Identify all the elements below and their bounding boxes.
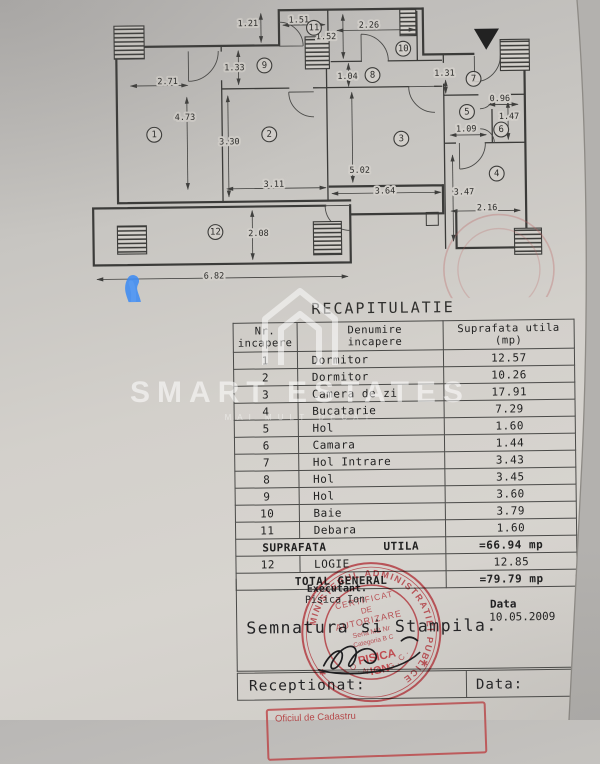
dimension-label: 3.11 <box>264 180 285 190</box>
room-area: 1.60 <box>445 518 576 537</box>
dimension-label: 1.04 <box>337 72 358 82</box>
cadastru-box-stamp: Oficiul de Cadastru <box>266 701 488 761</box>
room-number-circle: 11 <box>308 23 319 33</box>
room-name: Baie <box>299 503 445 522</box>
room-area: 1.60 <box>444 416 575 435</box>
room-number-circle: 6 <box>498 125 504 135</box>
room-area: 17.91 <box>444 382 575 401</box>
dimension-label: 3.64 <box>375 186 396 196</box>
dimension-label: 2.26 <box>359 21 380 31</box>
signature <box>303 626 454 688</box>
room-name: Dormitor <box>297 367 443 386</box>
dimension-label: 1.21 <box>238 19 259 29</box>
dimension-label: 2.16 <box>477 203 498 213</box>
room-number: 4 <box>234 403 298 421</box>
room-name: Hol <box>298 469 444 488</box>
room-number: 9 <box>235 488 299 506</box>
room-name: Camera de zi <box>297 384 443 403</box>
dimension-label: 3.30 <box>219 137 240 147</box>
room-number: 2 <box>234 369 298 387</box>
dimension-label: 1.31 <box>434 69 455 79</box>
room-number-circle: 4 <box>494 169 500 179</box>
room-number-circle: 8 <box>370 71 376 81</box>
room-name: Camara <box>298 435 444 454</box>
dimension-label: 5.02 <box>349 166 370 176</box>
room-number-circle: 2 <box>266 130 272 140</box>
recap-title: RECAPITULATIE <box>311 298 455 318</box>
header-nr: Nr.incapere <box>233 323 297 353</box>
room-area: 7.29 <box>444 399 575 418</box>
header-denumire: Denumireincapere <box>297 321 444 352</box>
room-number-circle: 7 <box>471 74 477 84</box>
room-name: Debara <box>299 520 445 539</box>
room-number: 8 <box>235 471 299 489</box>
room-name: Hol <box>298 418 444 437</box>
dimension-label: 1.33 <box>224 63 245 73</box>
room-number: 3 <box>234 386 298 404</box>
room-area: 12.57 <box>443 348 574 367</box>
blue-marker-scribble <box>131 281 137 304</box>
dimension-label: 1.09 <box>456 124 477 134</box>
room-number-circle: 12 <box>210 227 221 237</box>
entrance-arrow-icon <box>474 29 499 50</box>
header-suprafata: Suprafata utila(mp) <box>443 319 575 350</box>
room-number: 5 <box>234 420 298 438</box>
table-header-row: Nr.incapere Denumireincapere Suprafata u… <box>233 319 574 352</box>
dimension-label: 6.82 <box>204 271 225 281</box>
room-area: 10.26 <box>443 365 574 384</box>
data-value: 10.05.2009 <box>489 610 555 624</box>
room-number: 1 <box>233 352 297 370</box>
scanned-document: 1.211.512.261.521.331.042.711.310.964.73… <box>0 0 600 724</box>
room-area: 3.45 <box>445 467 576 486</box>
room-area: 1.44 <box>444 433 575 452</box>
room-name: Bucatarie <box>298 401 444 420</box>
data2-label: Data: <box>476 676 523 693</box>
room-number-circle: 1 <box>151 130 157 140</box>
recap-table: Nr.incapere Denumireincapere Suprafata u… <box>233 319 578 591</box>
faint-stamp <box>443 214 554 304</box>
dimension-label: 4.73 <box>175 113 196 123</box>
room-area: 3.60 <box>445 484 576 503</box>
room-area: 3.79 <box>445 501 576 520</box>
room-number: 11 <box>235 522 299 540</box>
room-name: Dormitor <box>297 350 443 369</box>
floor-plan: 1.211.512.261.521.331.042.711.310.964.73… <box>0 0 599 304</box>
room-number-circle: 10 <box>398 44 409 54</box>
dimension-label: 1.51 <box>289 15 310 25</box>
room-number-circle: 3 <box>399 134 405 144</box>
data-label: Data <box>490 597 517 610</box>
room-number: 10 <box>235 505 299 523</box>
dimension-label: 2.71 <box>157 77 178 87</box>
dimension-label: 2.08 <box>248 229 269 239</box>
room-number-circle: 9 <box>262 61 268 71</box>
dimension-label: 3.47 <box>454 187 475 197</box>
dimension-label: 0.96 <box>490 94 511 104</box>
room-area: 3.43 <box>444 450 575 469</box>
receptionat-divider <box>466 671 467 697</box>
room-name: Hol Intrare <box>298 452 444 471</box>
room-number: 7 <box>235 454 299 472</box>
cadastru-stamp-text: Oficiul de Cadastru <box>275 711 356 725</box>
suprafata-utila-value: =66.94 mp <box>445 535 576 554</box>
room-number: 6 <box>234 437 298 455</box>
dimension-label: 1.47 <box>499 112 520 122</box>
room-name: Hol <box>299 486 445 505</box>
room-number-circle: 5 <box>464 107 470 117</box>
